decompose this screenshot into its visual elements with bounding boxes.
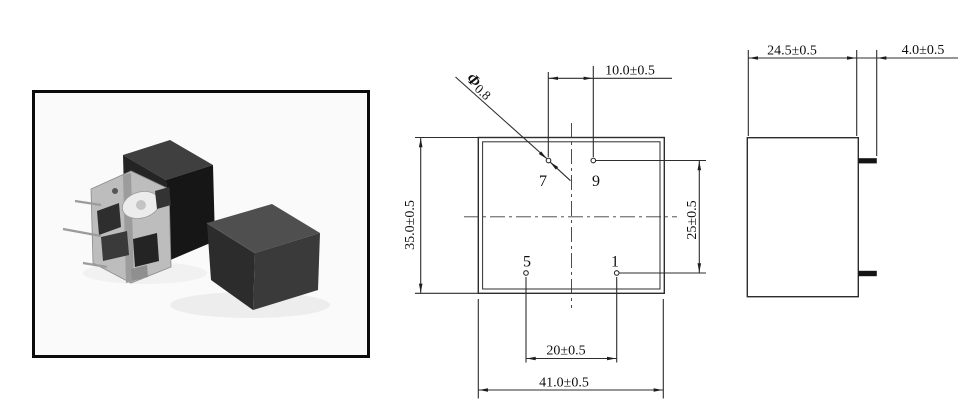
dimension-drawing: 7 9 5 1 10.0±0.5 35.0±0.5 <box>0 0 969 402</box>
arrowhead-right <box>607 357 616 360</box>
dimension-text: 35.0±0.5 <box>403 200 418 250</box>
arrowhead-up <box>419 138 423 147</box>
dimension-pin-diameter: Φ 0.8 <box>456 70 571 181</box>
side-pin-top <box>858 158 877 163</box>
dimension-text: 20±0.5 <box>546 344 585 359</box>
leader-line <box>456 77 547 158</box>
pin-label-9: 9 <box>592 173 600 190</box>
arrowhead-down <box>419 284 423 293</box>
arrowhead-left <box>877 56 886 60</box>
pin-label-5: 5 <box>523 254 531 271</box>
arrowhead-left <box>749 56 758 60</box>
pin-hole-9 <box>591 158 596 163</box>
arrowhead-right <box>584 77 593 80</box>
arrowhead-down <box>698 263 702 272</box>
dimension-text: 25±0.5 <box>685 200 700 239</box>
dimension-body-height: 35.0±0.5 <box>403 138 478 294</box>
pin-diameter-text: Φ 0.8 <box>462 70 496 103</box>
dimension-text: 41.0±0.5 <box>539 376 589 391</box>
pin-hole-5 <box>524 271 529 276</box>
side-pin-bottom <box>858 271 877 276</box>
dimension-body-depth: 24.5±0.5 <box>748 44 876 60</box>
dimension-text: 24.5±0.5 <box>767 44 817 59</box>
arrowhead-right <box>654 388 663 391</box>
pin-hole-1 <box>614 271 619 276</box>
arrowhead-left <box>549 77 558 80</box>
dimension-pin-length: 4.0±0.5 <box>877 43 958 60</box>
side-view: 24.5±0.5 4.0±0.5 <box>747 43 958 297</box>
datasheet-page: 7 9 5 1 10.0±0.5 35.0±0.5 <box>0 0 969 402</box>
dimension-text: 4.0±0.5 <box>902 43 945 58</box>
dimension-top-hole-spacing: 10.0±0.5 <box>548 64 672 158</box>
side-body-outline <box>747 138 858 297</box>
arrowhead-left <box>479 388 488 391</box>
dimension-text: 10.0±0.5 <box>605 64 655 79</box>
pin-hole-7 <box>546 158 551 163</box>
pin-label-1: 1 <box>611 254 619 271</box>
arrowhead-left <box>527 357 536 360</box>
top-view: 7 9 5 1 10.0±0.5 35.0±0.5 <box>403 64 706 399</box>
arrowhead-right <box>847 56 856 60</box>
centerlines <box>464 123 677 308</box>
pin-label-7: 7 <box>539 173 547 190</box>
arrowhead-up <box>698 161 702 170</box>
